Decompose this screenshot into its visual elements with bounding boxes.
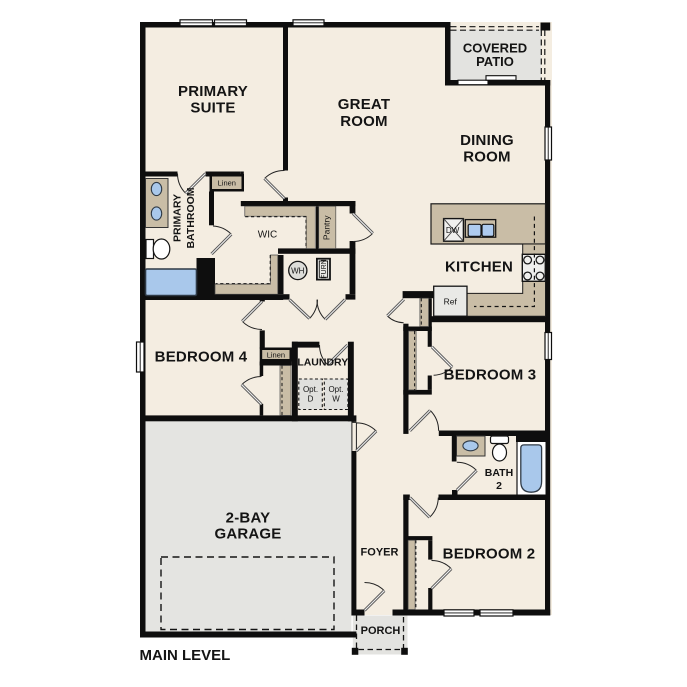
svg-text:FOYER: FOYER (361, 547, 399, 559)
svg-text:Opt.: Opt. (328, 385, 343, 394)
svg-text:MAIN LEVEL: MAIN LEVEL (140, 647, 231, 664)
svg-text:2-BAY: 2-BAY (226, 510, 271, 527)
svg-text:2: 2 (496, 480, 502, 492)
svg-text:DW: DW (446, 226, 460, 235)
svg-text:Opt.: Opt. (303, 385, 318, 394)
svg-text:BATHROOM: BATHROOM (185, 187, 197, 248)
svg-text:W: W (332, 395, 340, 404)
svg-text:BEDROOM 2: BEDROOM 2 (443, 546, 536, 563)
svg-text:ROOM: ROOM (463, 149, 510, 166)
svg-text:BEDROOM 4: BEDROOM 4 (155, 349, 248, 366)
svg-text:WH: WH (291, 266, 305, 275)
svg-text:DINING: DINING (460, 132, 514, 149)
svg-text:BEDROOM 3: BEDROOM 3 (444, 367, 537, 384)
svg-text:GARAGE: GARAGE (214, 526, 281, 543)
svg-text:SUITE: SUITE (190, 100, 235, 117)
svg-text:PRIMARY: PRIMARY (172, 194, 184, 242)
svg-text:Linen: Linen (267, 351, 285, 360)
svg-text:GREAT: GREAT (338, 96, 390, 113)
svg-text:Ref: Ref (444, 297, 458, 307)
svg-text:PRIMARY: PRIMARY (178, 83, 248, 100)
svg-text:Pantry: Pantry (322, 215, 332, 240)
svg-text:BATH: BATH (485, 467, 513, 479)
svg-text:ROOM: ROOM (340, 113, 387, 130)
svg-text:LAUNDRY: LAUNDRY (297, 357, 348, 369)
svg-text:PORCH: PORCH (361, 625, 401, 637)
svg-text:KITCHEN: KITCHEN (445, 259, 513, 276)
svg-text:PATIO: PATIO (476, 54, 514, 69)
svg-text:D: D (308, 395, 314, 404)
svg-text:Linen: Linen (218, 179, 236, 188)
svg-text:FURN: FURN (321, 259, 328, 278)
svg-text:WIC: WIC (258, 230, 277, 241)
